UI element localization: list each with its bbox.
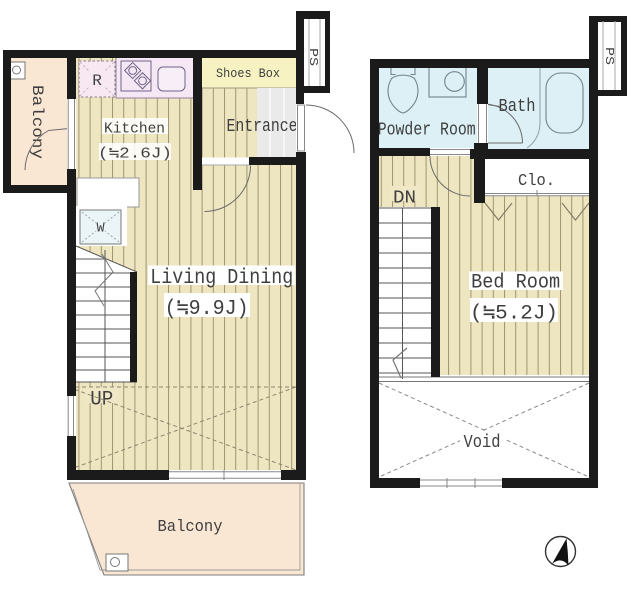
svg-text:UP: UP <box>90 389 113 412</box>
svg-text:PS: PS <box>602 47 616 65</box>
svg-text:Balcony: Balcony <box>158 518 223 537</box>
svg-text:Bed Room: Bed Room <box>471 272 560 295</box>
svg-text:W: W <box>96 222 105 237</box>
svg-text:Clo.: Clo. <box>518 172 555 191</box>
svg-text:Powder Room: Powder Room <box>378 120 476 141</box>
svg-text:DN: DN <box>393 189 416 209</box>
svg-text:R: R <box>92 72 102 90</box>
svg-text:(≒5.2J): (≒5.2J) <box>470 303 558 326</box>
svg-text:Kitchen: Kitchen <box>104 121 165 138</box>
svg-text:PS: PS <box>306 48 320 66</box>
svg-text:(≒2.6J): (≒2.6J) <box>98 146 172 163</box>
svg-text:Entrance: Entrance <box>227 116 298 137</box>
svg-text:Shoes Box: Shoes Box <box>216 67 280 81</box>
svg-text:Living Dining: Living Dining <box>150 266 293 290</box>
svg-text:Bath: Bath <box>499 97 536 117</box>
svg-text:(≒9.9J): (≒9.9J) <box>165 297 249 321</box>
svg-text:Void: Void <box>464 433 501 453</box>
